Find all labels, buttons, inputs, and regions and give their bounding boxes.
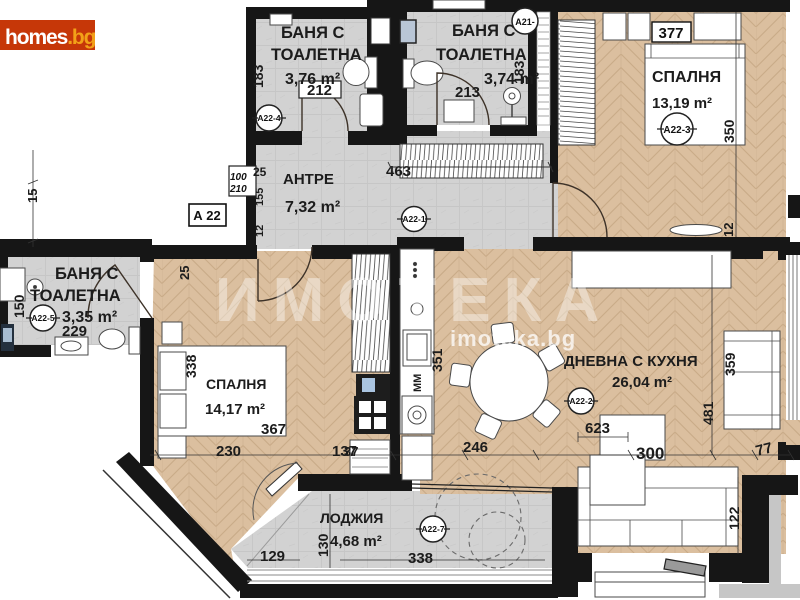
svg-text:37: 37 bbox=[344, 444, 358, 459]
svg-text:100: 100 bbox=[230, 172, 247, 183]
svg-text:А22-3: А22-3 bbox=[663, 125, 691, 136]
svg-text:А22-1: А22-1 bbox=[402, 214, 425, 224]
svg-text:229: 229 bbox=[62, 323, 87, 340]
svg-text:А22-4: А22-4 bbox=[257, 113, 280, 123]
svg-text:367: 367 bbox=[261, 421, 286, 438]
svg-text:imoteka.bg: imoteka.bg bbox=[450, 326, 576, 351]
svg-text:ЛОДЖИЯ: ЛОДЖИЯ bbox=[320, 510, 383, 526]
svg-text:БАНЯ С: БАНЯ С bbox=[281, 24, 345, 42]
svg-text:130: 130 bbox=[315, 533, 331, 557]
svg-text:183: 183 bbox=[250, 64, 266, 88]
svg-text:481: 481 bbox=[700, 401, 716, 425]
svg-text:129: 129 bbox=[260, 548, 285, 565]
svg-text:ММ: ММ bbox=[412, 374, 424, 392]
svg-text:СПАЛНЯ: СПАЛНЯ bbox=[652, 69, 721, 86]
svg-text:13,19 m²: 13,19 m² bbox=[652, 95, 712, 112]
svg-text:15: 15 bbox=[25, 189, 40, 203]
svg-text:359: 359 bbox=[722, 352, 738, 376]
svg-text:homes.bg: homes.bg bbox=[5, 26, 96, 49]
svg-text:ТОАЛЕТНА: ТОАЛЕТНА bbox=[271, 46, 362, 64]
svg-text:4,68 m²: 4,68 m² bbox=[330, 533, 382, 550]
svg-text:122: 122 bbox=[726, 506, 742, 530]
svg-text:26,04 m²: 26,04 m² bbox=[612, 374, 672, 391]
svg-text:А 22: А 22 bbox=[193, 208, 220, 223]
svg-text:212: 212 bbox=[307, 82, 332, 99]
svg-text:А22-7: А22-7 bbox=[421, 524, 444, 534]
svg-text:7,32 m²: 7,32 m² bbox=[285, 199, 340, 216]
svg-text:351: 351 bbox=[429, 348, 445, 372]
svg-text:155: 155 bbox=[254, 188, 266, 206]
svg-text:А22-2: А22-2 bbox=[569, 396, 592, 406]
svg-text:230: 230 bbox=[216, 443, 241, 460]
svg-text:213: 213 bbox=[455, 84, 480, 101]
svg-text:БАНЯ С: БАНЯ С bbox=[55, 265, 119, 283]
svg-text:25: 25 bbox=[253, 165, 267, 179]
svg-text:ИМОТЕКА: ИМОТЕКА bbox=[215, 266, 612, 335]
svg-text:СПАЛНЯ: СПАЛНЯ bbox=[206, 376, 266, 392]
svg-text:АНТРЕ: АНТРЕ bbox=[283, 171, 334, 188]
svg-text:150: 150 bbox=[11, 294, 27, 318]
svg-text:ТОАЛЕТНА: ТОАЛЕТНА bbox=[30, 287, 121, 305]
svg-text:338: 338 bbox=[183, 354, 199, 378]
svg-text:12: 12 bbox=[721, 223, 736, 237]
svg-text:183: 183 bbox=[511, 60, 527, 84]
svg-text:377: 377 bbox=[658, 25, 683, 42]
svg-text:350: 350 bbox=[721, 119, 737, 143]
svg-text:А21-: А21- bbox=[515, 17, 535, 27]
svg-text:623: 623 bbox=[585, 420, 610, 437]
svg-text:210: 210 bbox=[229, 184, 247, 195]
svg-text:14,17 m²: 14,17 m² bbox=[205, 401, 265, 418]
svg-text:ДНЕВНА С КУХНЯ: ДНЕВНА С КУХНЯ bbox=[564, 353, 698, 370]
svg-text:25: 25 bbox=[177, 266, 192, 280]
svg-text:246: 246 bbox=[463, 439, 488, 456]
svg-text:338: 338 bbox=[408, 550, 433, 567]
svg-text:300: 300 bbox=[636, 444, 664, 463]
svg-text:А22-5: А22-5 bbox=[31, 313, 54, 323]
svg-text:БАНЯ С: БАНЯ С bbox=[452, 22, 516, 40]
svg-text:12: 12 bbox=[254, 225, 266, 237]
